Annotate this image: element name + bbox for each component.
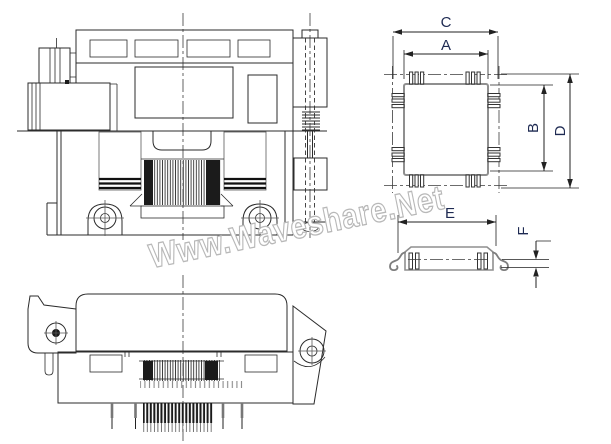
front-view-socket [28,275,326,441]
spring-stack-left [99,132,141,190]
pin-cluster [143,403,213,423]
drawing-canvas: C A B D E [0,0,611,444]
bottom-pins [112,381,243,432]
dim-label-d: D [552,125,569,136]
lid-window [187,40,230,57]
lid-window [90,40,127,57]
hidden-pin-dashes [140,381,243,388]
socket-lid [76,30,293,63]
hinge-plate [293,306,326,404]
dimension-f: F [501,226,551,288]
socket-lid [76,294,287,351]
chip-cavity [153,131,211,150]
dim-label-a: A [441,37,451,54]
socket-body [17,63,327,131]
socket-technical-drawing: C A B D E [0,0,611,444]
latch-pivot [65,80,69,84]
dim-label-f: F [515,226,532,235]
contact-band [139,360,224,381]
latch-mechanism [28,38,110,130]
lid-window [238,40,270,57]
package-top-view: C A B D [384,14,579,193]
latch-lever [28,296,76,375]
gull-wing-lead-left [390,253,405,271]
dim-label-c: C [441,14,452,31]
side-view-open-socket [17,13,327,240]
package-body [404,84,488,175]
contact-pin-block [130,159,233,218]
coil-spring [302,112,320,130]
lid-window [135,40,178,57]
spring-stack-right [224,132,266,190]
dim-label-b: B [525,123,542,133]
mounting-foot-left [86,200,124,236]
